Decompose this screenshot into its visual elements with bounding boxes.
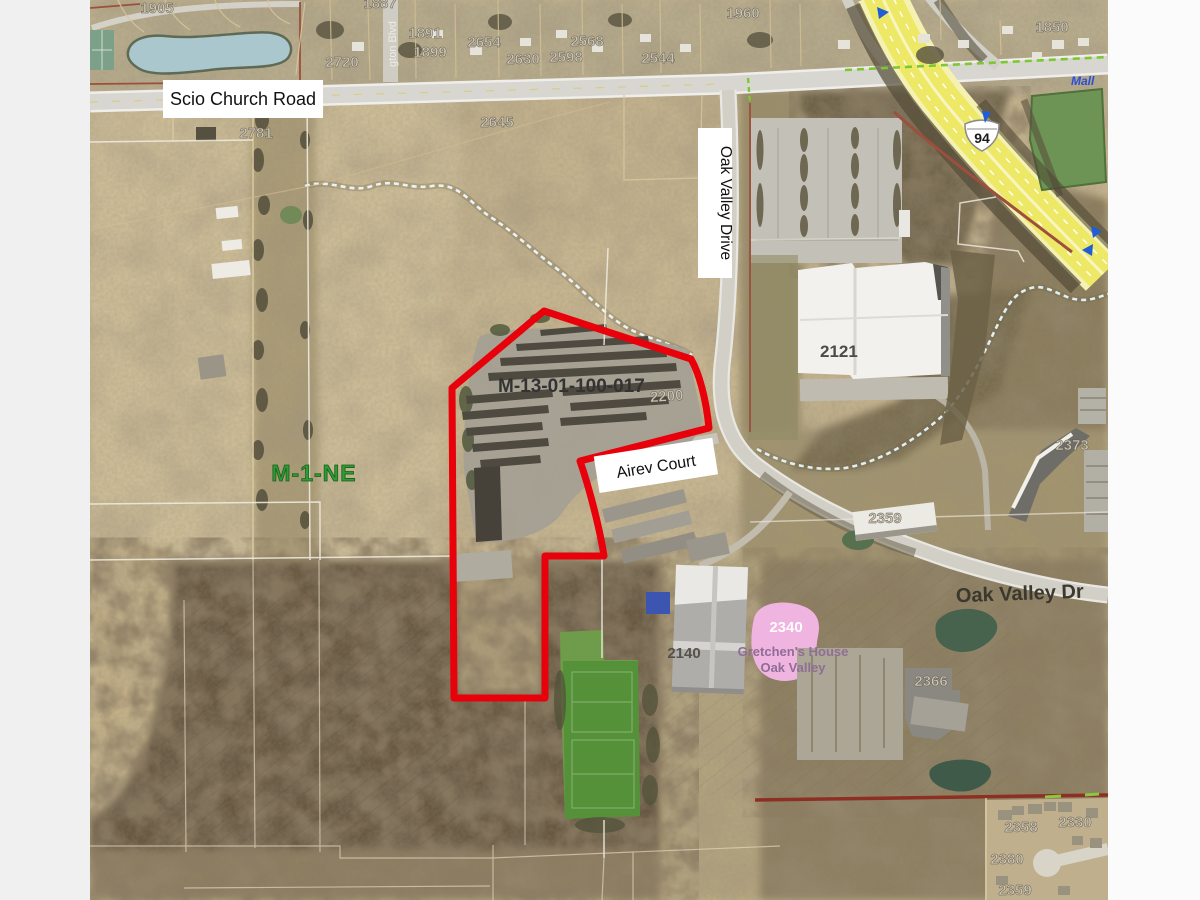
- svg-text:1850: 1850: [1035, 19, 1068, 36]
- svg-text:1899: 1899: [413, 44, 446, 61]
- svg-text:2598: 2598: [549, 49, 582, 66]
- svg-text:2340: 2340: [769, 619, 802, 636]
- svg-text:2630: 2630: [506, 51, 539, 68]
- svg-text:2380: 2380: [990, 851, 1023, 868]
- svg-text:Oak Valley: Oak Valley: [760, 660, 826, 675]
- svg-text:2359: 2359: [998, 882, 1031, 899]
- svg-text:2373: 2373: [1055, 437, 1088, 454]
- svg-text:Oak Valley Drive: Oak Valley Drive: [717, 146, 734, 260]
- svg-text:Oak Valley Dr: Oak Valley Dr: [956, 581, 1085, 607]
- svg-text:2720: 2720: [325, 54, 358, 71]
- svg-text:2121: 2121: [820, 342, 858, 361]
- svg-text:Mall: Mall: [1071, 74, 1095, 88]
- svg-text:M-1-NE: M-1-NE: [271, 460, 356, 486]
- svg-text:Scio Church Road: Scio Church Road: [170, 89, 316, 109]
- svg-text:2359: 2359: [868, 510, 901, 527]
- svg-text:2781: 2781: [239, 125, 272, 142]
- svg-text:2140: 2140: [667, 645, 700, 662]
- svg-text:gton Blvd: gton Blvd: [387, 21, 399, 67]
- svg-text:M-13-01-100-017: M-13-01-100-017: [498, 376, 645, 397]
- svg-text:94: 94: [974, 130, 990, 146]
- svg-text:2200: 2200: [649, 387, 683, 406]
- svg-text:2654: 2654: [467, 34, 501, 51]
- svg-text:Gretchen's House: Gretchen's House: [738, 644, 849, 659]
- svg-text:2358: 2358: [1004, 819, 1037, 836]
- svg-text:2366: 2366: [914, 673, 947, 690]
- svg-text:1891: 1891: [408, 25, 441, 42]
- svg-text:1887: 1887: [363, 0, 396, 12]
- svg-text:2645: 2645: [480, 114, 513, 131]
- svg-text:2330: 2330: [1058, 814, 1091, 831]
- svg-text:2544: 2544: [641, 50, 675, 67]
- svg-text:1905: 1905: [140, 0, 173, 17]
- svg-text:2568: 2568: [570, 33, 603, 50]
- svg-text:1960: 1960: [726, 5, 759, 22]
